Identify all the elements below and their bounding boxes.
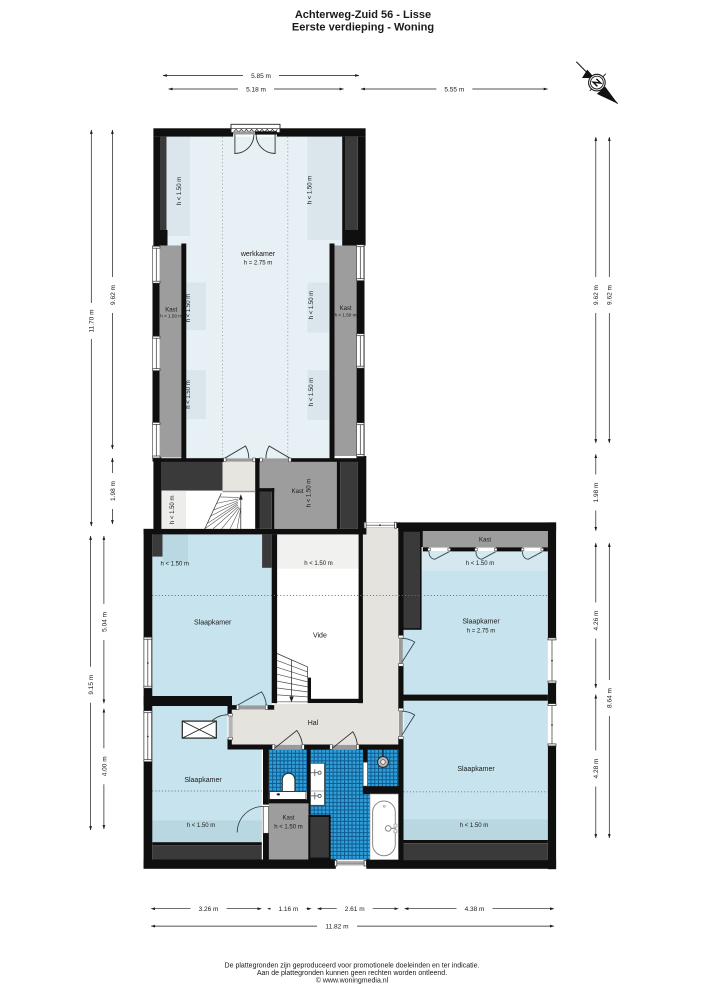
svg-text:h < 1.50 m: h < 1.50 m <box>274 824 303 830</box>
svg-text:Kast: Kast <box>292 489 304 495</box>
svg-text:Vide: Vide <box>313 633 327 640</box>
svg-text:4.38 m: 4.38 m <box>465 906 485 913</box>
svg-text:1.98 m: 1.98 m <box>110 481 117 501</box>
svg-text:h < 1.50 m: h < 1.50 m <box>460 823 489 829</box>
svg-text:Achterweg-Zuid 56 - Lisse: Achterweg-Zuid 56 - Lisse <box>295 9 431 21</box>
svg-text:5.18 m: 5.18 m <box>246 86 266 93</box>
svg-text:Aan de plattegronden kunnen ge: Aan de plattegronden kunnen geen rechten… <box>257 970 447 977</box>
svg-text:9.62 m: 9.62 m <box>110 285 117 305</box>
svg-text:4.00 m: 4.00 m <box>101 756 108 776</box>
svg-text:h < 1.50 m: h < 1.50 m <box>186 380 192 409</box>
svg-text:2.61 m: 2.61 m <box>345 906 365 913</box>
svg-text:Kast: Kast <box>340 306 352 312</box>
svg-text:Hal: Hal <box>308 720 319 727</box>
svg-text:h < 1.50 m: h < 1.50 m <box>307 479 313 508</box>
svg-text:h < 1.50 m: h < 1.50 m <box>160 314 182 319</box>
svg-text:4.26 m: 4.26 m <box>593 611 600 631</box>
svg-text:8.64 m: 8.64 m <box>607 688 614 708</box>
svg-text:Eerste verdieping - Woning: Eerste verdieping - Woning <box>292 22 434 34</box>
svg-text:h < 1.50 m: h < 1.50 m <box>335 313 357 318</box>
svg-text:Kast: Kast <box>479 538 491 544</box>
svg-text:9.15 m: 9.15 m <box>88 675 95 695</box>
svg-text:Slaapkamer: Slaapkamer <box>194 619 232 626</box>
svg-text:h < 1.50 m: h < 1.50 m <box>309 378 315 407</box>
svg-text:h = 2.75 m: h = 2.75 m <box>467 629 496 635</box>
svg-text:Slaapkamer: Slaapkamer <box>184 777 222 784</box>
svg-text:h < 1.50 m: h < 1.50 m <box>308 176 314 205</box>
svg-text:5.85 m: 5.85 m <box>251 73 271 80</box>
svg-text:h < 1.50 m: h < 1.50 m <box>466 561 495 567</box>
svg-text:De plattegronden zijn geproduc: De plattegronden zijn geproduceerd voor … <box>225 962 480 969</box>
svg-text:1.98 m: 1.98 m <box>593 483 600 503</box>
svg-text:11.70 m: 11.70 m <box>89 309 96 332</box>
svg-text:11.82 m: 11.82 m <box>325 924 348 931</box>
svg-text:5.04 m: 5.04 m <box>101 612 108 632</box>
svg-text:5.55 m: 5.55 m <box>444 86 464 93</box>
svg-text:Kast: Kast <box>282 816 294 822</box>
svg-text:h < 1.50 m: h < 1.50 m <box>187 823 216 829</box>
svg-text:4.28 m: 4.28 m <box>593 759 600 779</box>
svg-text:9.62 m: 9.62 m <box>607 285 614 305</box>
svg-text:Slaapkamer: Slaapkamer <box>462 619 500 626</box>
svg-text:h < 1.50 m: h < 1.50 m <box>170 496 176 525</box>
svg-text:9.62 m: 9.62 m <box>593 285 600 305</box>
svg-text:h < 1.50 m: h < 1.50 m <box>161 562 190 568</box>
svg-text:werkkamer: werkkamer <box>240 251 276 258</box>
svg-text:h < 1.50 m: h < 1.50 m <box>186 294 192 323</box>
svg-text:h < 1.50 m: h < 1.50 m <box>304 561 333 567</box>
svg-text:1.16 m: 1.16 m <box>278 906 298 913</box>
svg-text:Slaapkamer: Slaapkamer <box>457 766 495 773</box>
svg-text:© www.woningmedia.nl: © www.woningmedia.nl <box>316 976 389 984</box>
svg-text:h = 2.75 m: h = 2.75 m <box>244 261 273 267</box>
svg-text:3.26 m: 3.26 m <box>199 906 219 913</box>
svg-text:h < 1.50 m: h < 1.50 m <box>177 177 183 206</box>
svg-text:h < 1.50 m: h < 1.50 m <box>309 291 315 320</box>
